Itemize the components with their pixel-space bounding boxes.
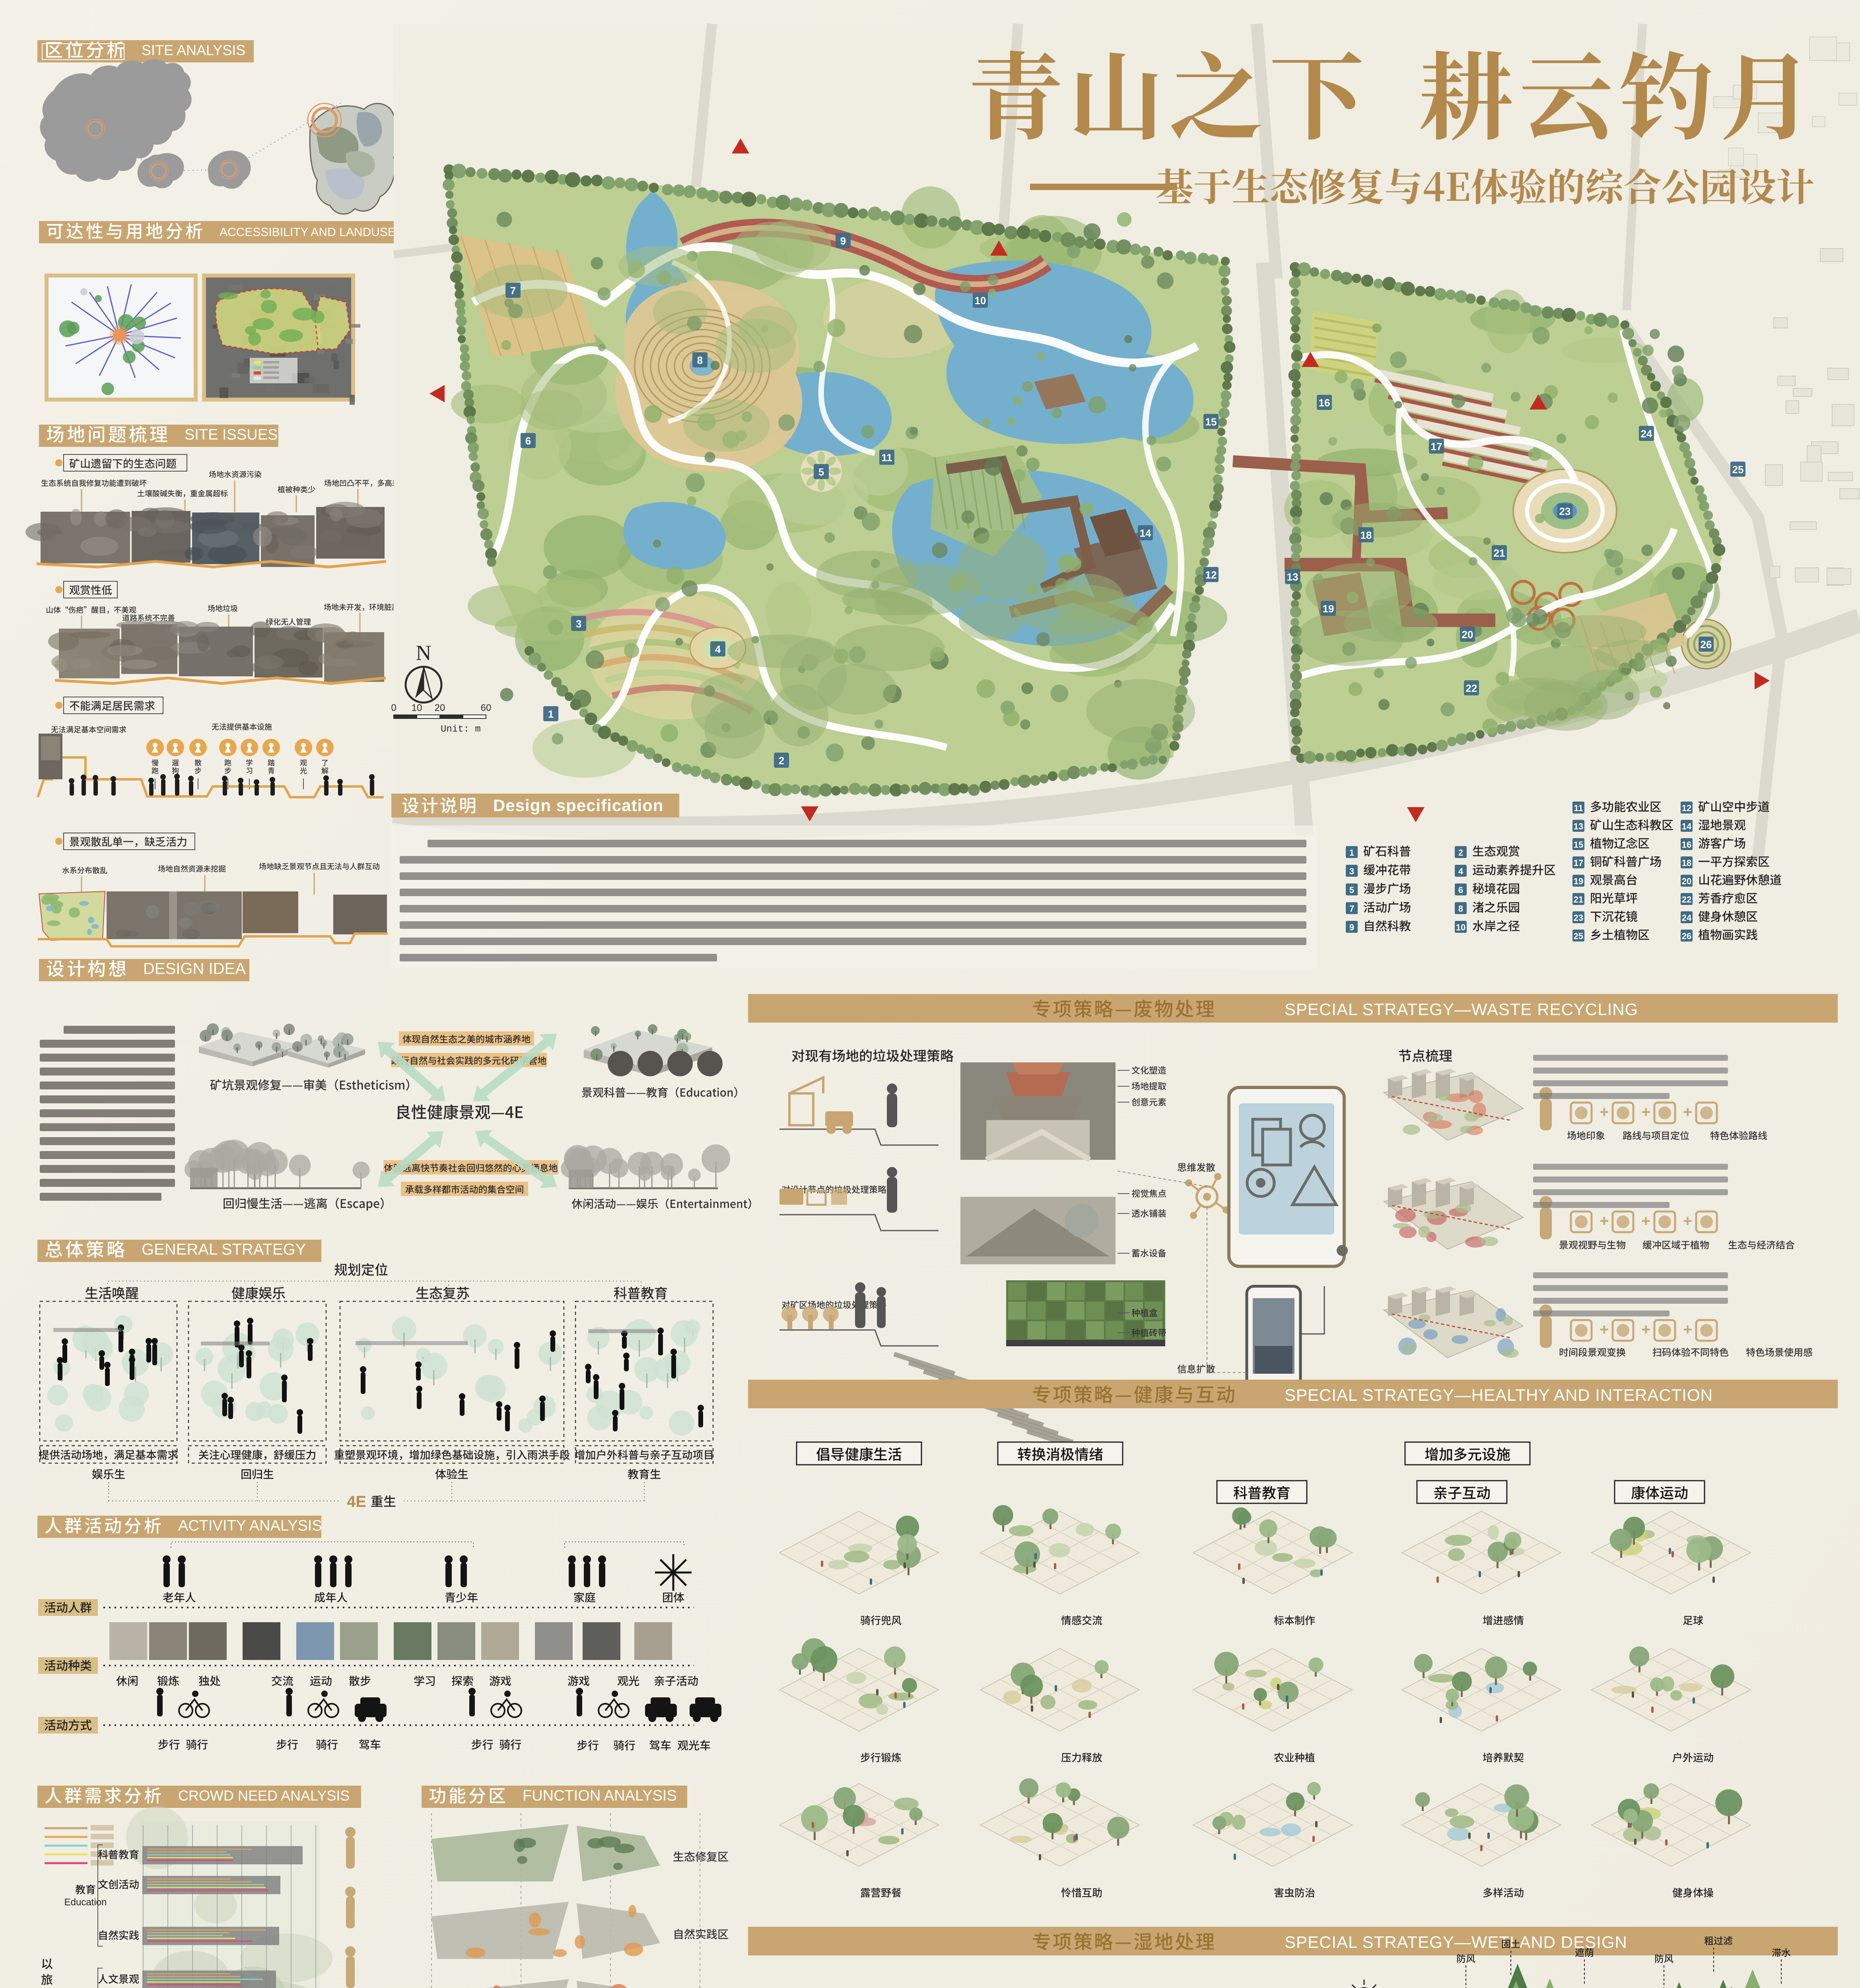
svg-text:SITE ISSUES: SITE ISSUES [185, 426, 278, 443]
svg-text:3: 3 [1349, 866, 1354, 876]
svg-text:DESIGN IDEA: DESIGN IDEA [143, 960, 246, 977]
svg-text:19: 19 [1323, 603, 1334, 615]
svg-text:13: 13 [1287, 571, 1298, 583]
svg-text:8: 8 [697, 354, 703, 366]
svg-text:Design specification: Design specification [493, 796, 663, 815]
svg-text:6: 6 [525, 435, 531, 447]
svg-text:+: + [1641, 1321, 1650, 1338]
svg-text:+: + [1683, 1103, 1692, 1121]
svg-text:20: 20 [435, 703, 445, 713]
svg-text:ACCESSIBILITY AND LANDUSE: ACCESSIBILITY AND LANDUSE [220, 225, 396, 239]
svg-text:1: 1 [1349, 848, 1354, 858]
svg-text:CROWD NEED ANALYSIS: CROWD NEED ANALYSIS [178, 1787, 350, 1804]
svg-text:2: 2 [779, 755, 784, 767]
svg-text:23: 23 [1574, 913, 1583, 923]
svg-text:12: 12 [1205, 569, 1217, 581]
svg-text:22: 22 [1682, 895, 1691, 905]
svg-text:4: 4 [715, 643, 721, 655]
svg-text:+: + [1600, 1212, 1609, 1230]
svg-text:+: + [1683, 1321, 1692, 1338]
svg-text:10: 10 [975, 295, 986, 307]
svg-text:3: 3 [576, 618, 581, 630]
svg-text:2: 2 [1458, 848, 1463, 858]
svg-text:24: 24 [1641, 428, 1652, 440]
svg-text:10: 10 [412, 703, 422, 713]
svg-text:60: 60 [481, 703, 492, 713]
svg-text:11: 11 [1574, 803, 1583, 813]
svg-text:21: 21 [1574, 895, 1583, 905]
svg-text:N: N [416, 641, 431, 665]
svg-text:17: 17 [1431, 441, 1442, 452]
svg-text:11: 11 [881, 452, 892, 464]
svg-text:18: 18 [1361, 529, 1372, 541]
svg-text:+: + [1641, 1103, 1650, 1121]
svg-text:7: 7 [510, 285, 516, 297]
svg-text:20: 20 [1462, 629, 1473, 641]
svg-text:7: 7 [1349, 904, 1354, 914]
svg-text:12: 12 [1682, 803, 1691, 813]
svg-text:26: 26 [1682, 931, 1691, 941]
svg-text:+: + [1600, 1321, 1609, 1338]
svg-text:26: 26 [1701, 639, 1712, 650]
svg-text:24: 24 [1682, 913, 1692, 923]
svg-text:9: 9 [840, 235, 846, 247]
svg-text:15: 15 [1574, 840, 1583, 850]
svg-text:23: 23 [1559, 505, 1571, 517]
svg-text:16: 16 [1682, 840, 1691, 850]
svg-text:SITE ANALYSIS: SITE ANALYSIS [142, 42, 245, 58]
svg-text:5: 5 [818, 466, 824, 478]
svg-text:FUNCTION ANALYSIS: FUNCTION ANALYSIS [523, 1787, 677, 1804]
svg-text:+: + [1600, 1103, 1609, 1121]
svg-text:25: 25 [1732, 464, 1744, 476]
svg-text:16: 16 [1319, 397, 1330, 409]
svg-text:22: 22 [1466, 682, 1477, 694]
svg-text:4: 4 [1458, 866, 1464, 876]
svg-text:SPECIAL STRATEGY—WETLAND DESIG: SPECIAL STRATEGY—WETLAND DESIGN [1285, 1933, 1627, 1951]
svg-text:+: + [1683, 1212, 1692, 1230]
svg-text:14: 14 [1682, 821, 1692, 831]
svg-text:SPECIAL STRATEGY—WASTE RECYCLI: SPECIAL STRATEGY—WASTE RECYCLING [1285, 1000, 1638, 1019]
svg-text:18: 18 [1682, 858, 1691, 868]
svg-text:10: 10 [1456, 922, 1465, 932]
svg-text:8: 8 [1458, 904, 1463, 914]
svg-text:ACTIVITY ANALYSIS: ACTIVITY ANALYSIS [178, 1517, 322, 1534]
svg-text:Unit: m: Unit: m [441, 724, 481, 735]
svg-text:GENERAL STRATEGY: GENERAL STRATEGY [142, 1241, 306, 1258]
svg-text:21: 21 [1494, 547, 1505, 559]
svg-text:SPECIAL STRATEGY—HEALTHY AND I: SPECIAL STRATEGY—HEALTHY AND INTERACTION [1285, 1386, 1713, 1404]
svg-text:25: 25 [1574, 931, 1583, 941]
svg-text:6: 6 [1458, 885, 1463, 895]
svg-text:15: 15 [1205, 416, 1217, 428]
svg-text:4E: 4E [347, 1493, 366, 1510]
svg-text:17: 17 [1574, 858, 1583, 868]
svg-text:+: + [1641, 1212, 1650, 1230]
svg-text:19: 19 [1574, 876, 1583, 886]
svg-text:20: 20 [1682, 876, 1691, 886]
svg-text:14: 14 [1140, 527, 1151, 539]
svg-text:5: 5 [1349, 885, 1354, 895]
svg-text:13: 13 [1574, 821, 1583, 831]
svg-text:9: 9 [1349, 922, 1354, 932]
svg-text:Education: Education [64, 1897, 107, 1908]
svg-text:0: 0 [391, 703, 396, 713]
svg-text:1: 1 [548, 708, 554, 720]
